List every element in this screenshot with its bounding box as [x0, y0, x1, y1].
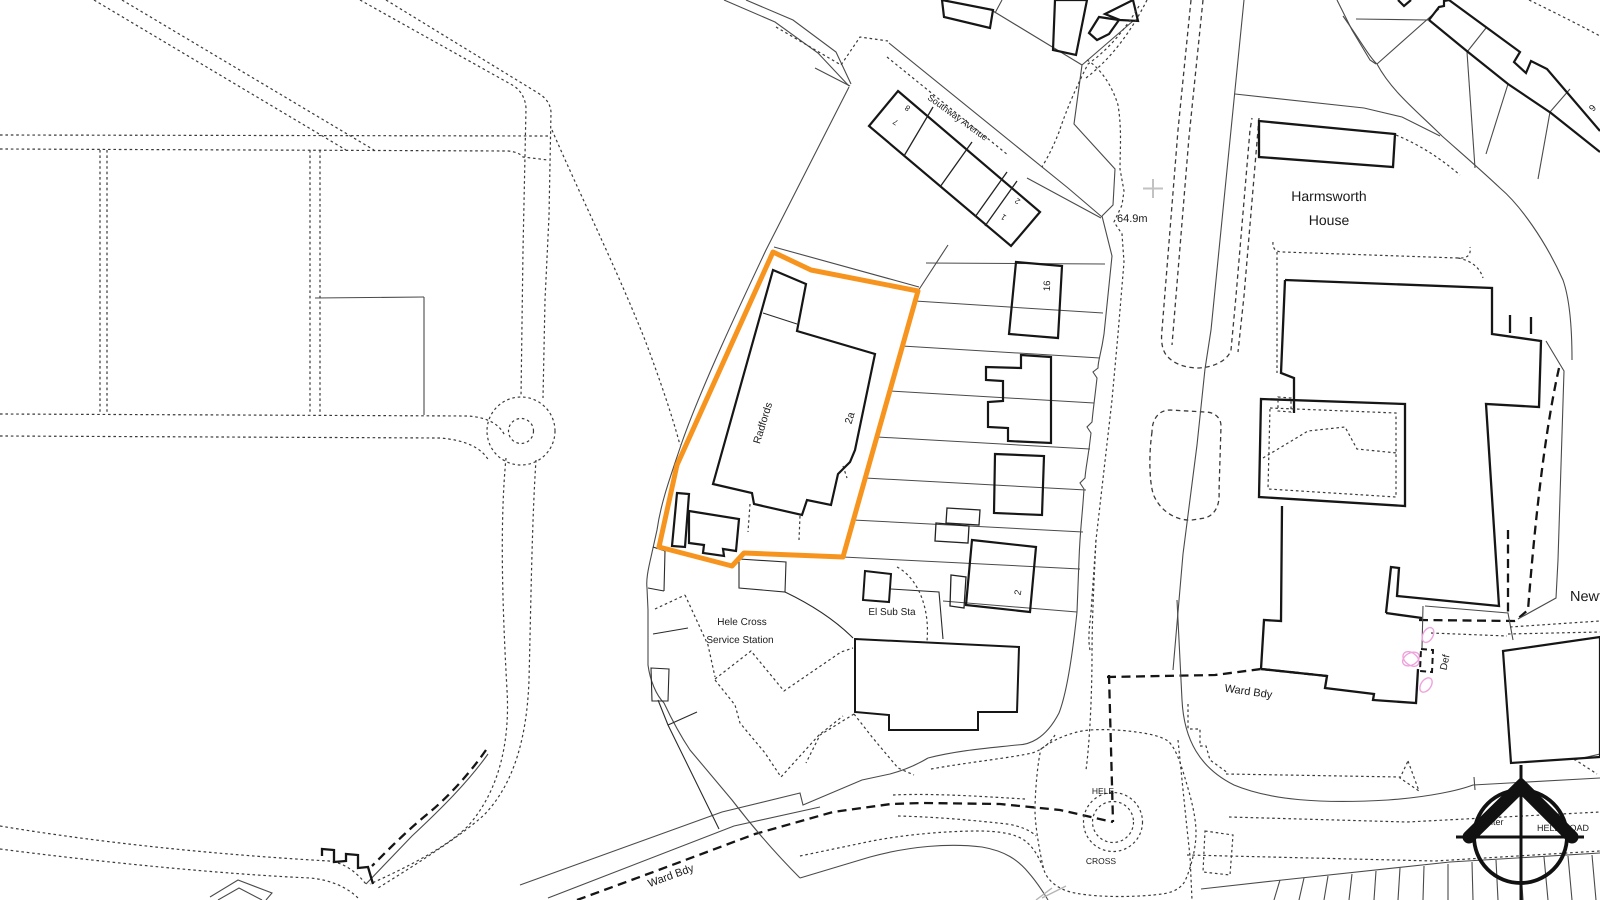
svg-text:64.9m: 64.9m: [1117, 213, 1148, 225]
svg-text:Harmsworth: Harmsworth: [1291, 188, 1366, 204]
svg-text:Hele Cross: Hele Cross: [717, 617, 766, 628]
svg-text:CROSS: CROSS: [1086, 856, 1117, 866]
svg-text:House: House: [1309, 212, 1350, 228]
svg-text:Service Station: Service Station: [706, 635, 773, 646]
svg-text:El Sub Sta: El Sub Sta: [868, 607, 916, 618]
svg-text:HELE: HELE: [1092, 786, 1115, 796]
svg-text:Newt: Newt: [1570, 589, 1600, 605]
svg-text:16: 16: [1042, 280, 1053, 291]
